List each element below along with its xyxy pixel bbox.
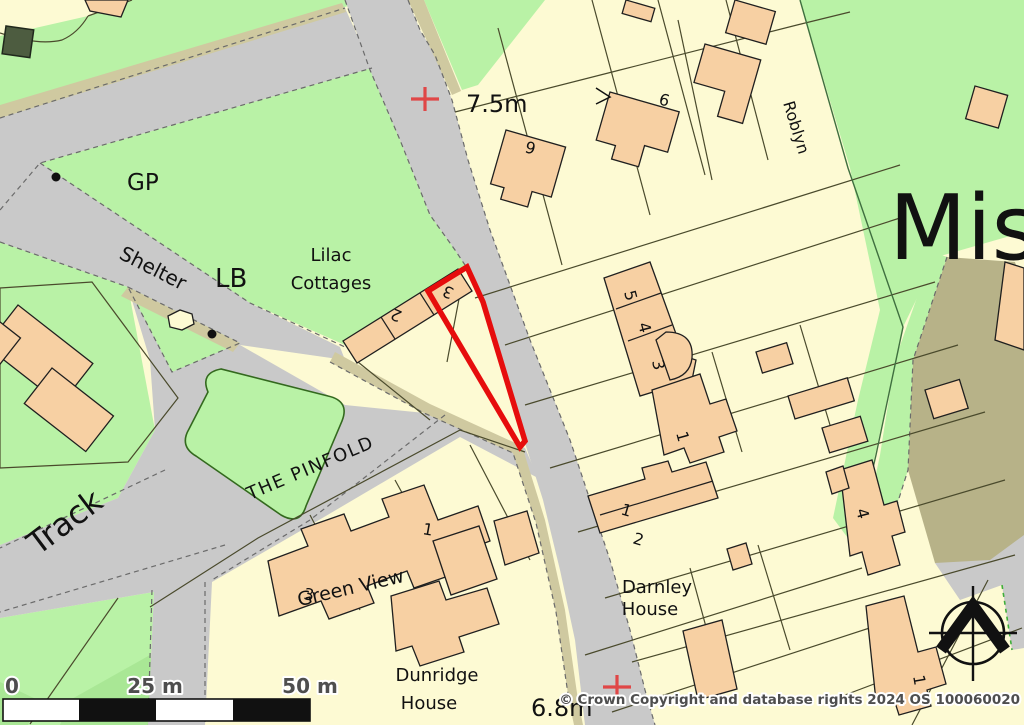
attribution-text: © Crown Copyright and database rights 20… bbox=[559, 692, 1020, 708]
label-dunridge-1: Dunridge bbox=[395, 665, 478, 686]
label-darnley-2: House bbox=[622, 599, 678, 620]
label-lilac-2: Cottages bbox=[291, 273, 372, 294]
place-name: Mis bbox=[889, 176, 1024, 281]
scale-label-0: 0 bbox=[5, 674, 19, 698]
label-gp: GP bbox=[127, 170, 159, 196]
guide-post-dot bbox=[52, 173, 61, 182]
site-plan-map: GP LB Shelter Lilac Cottages 7.5m 6.8m T… bbox=[0, 0, 1024, 725]
label-lb: LB bbox=[215, 264, 247, 294]
label-dunridge-2: House bbox=[401, 693, 457, 714]
scale-label-50m: 50 m bbox=[282, 674, 338, 698]
label-lilac-1: Lilac bbox=[311, 245, 352, 266]
post-dot bbox=[208, 330, 217, 339]
label-darnley-1: Darnley bbox=[622, 577, 692, 598]
map-canvas: GP LB Shelter Lilac Cottages 7.5m 6.8m T… bbox=[0, 0, 1024, 725]
spot-height-7-5m: 7.5m bbox=[466, 90, 528, 118]
scale-label-25m: 25 m bbox=[127, 674, 183, 698]
glasshouse-building bbox=[2, 26, 34, 58]
